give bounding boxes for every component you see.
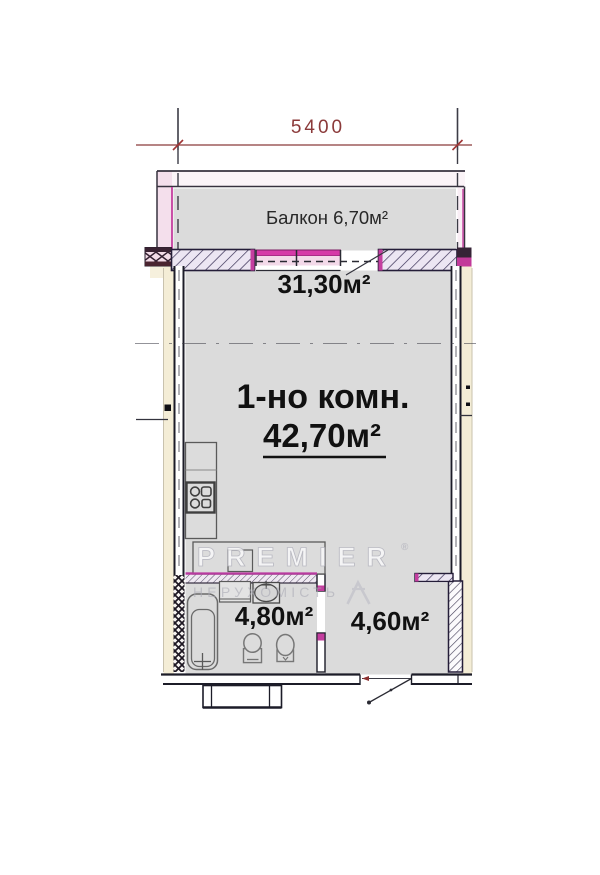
svg-text:4,80м²: 4,80м² [235, 601, 314, 631]
svg-text:Балкон 6,70м²: Балкон 6,70м² [266, 207, 388, 228]
svg-text:®: ® [401, 542, 409, 553]
svg-text:4,60м²: 4,60м² [351, 606, 430, 636]
svg-text:НЕРУХОМІСТЬ: НЕРУХОМІСТЬ [193, 584, 339, 600]
svg-text:42,70м²: 42,70м² [263, 417, 381, 454]
svg-text:PREMIER: PREMIER [197, 542, 397, 572]
svg-text:5400: 5400 [291, 117, 345, 138]
svg-text:1-но комн.: 1-но комн. [236, 378, 409, 416]
svg-text:31,30м²: 31,30м² [278, 269, 371, 299]
